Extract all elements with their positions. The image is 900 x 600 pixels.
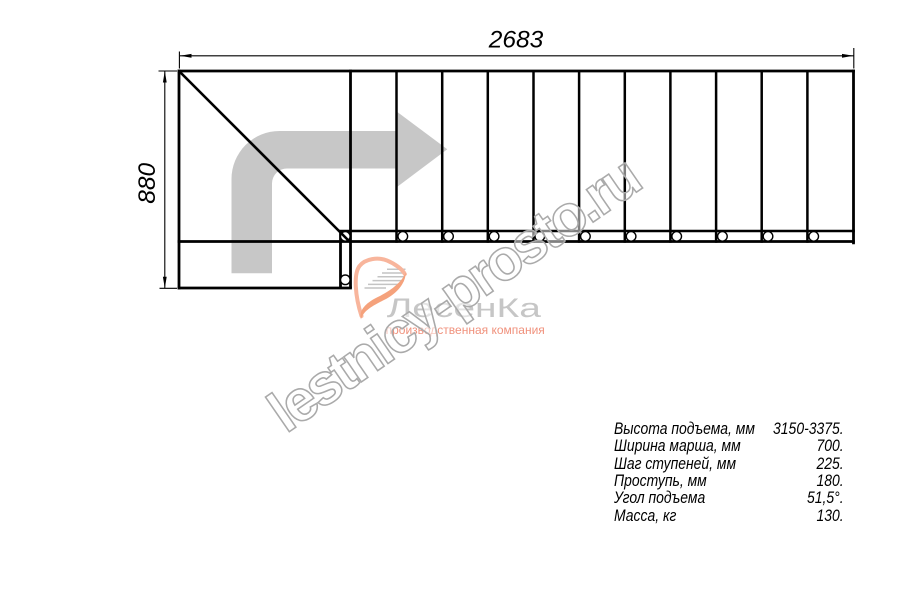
svg-text:880: 880 — [134, 162, 161, 203]
svg-text:2683: 2683 — [488, 27, 544, 54]
svg-text:lestnicy-prosto.ru: lestnicy-prosto.ru — [256, 145, 650, 445]
